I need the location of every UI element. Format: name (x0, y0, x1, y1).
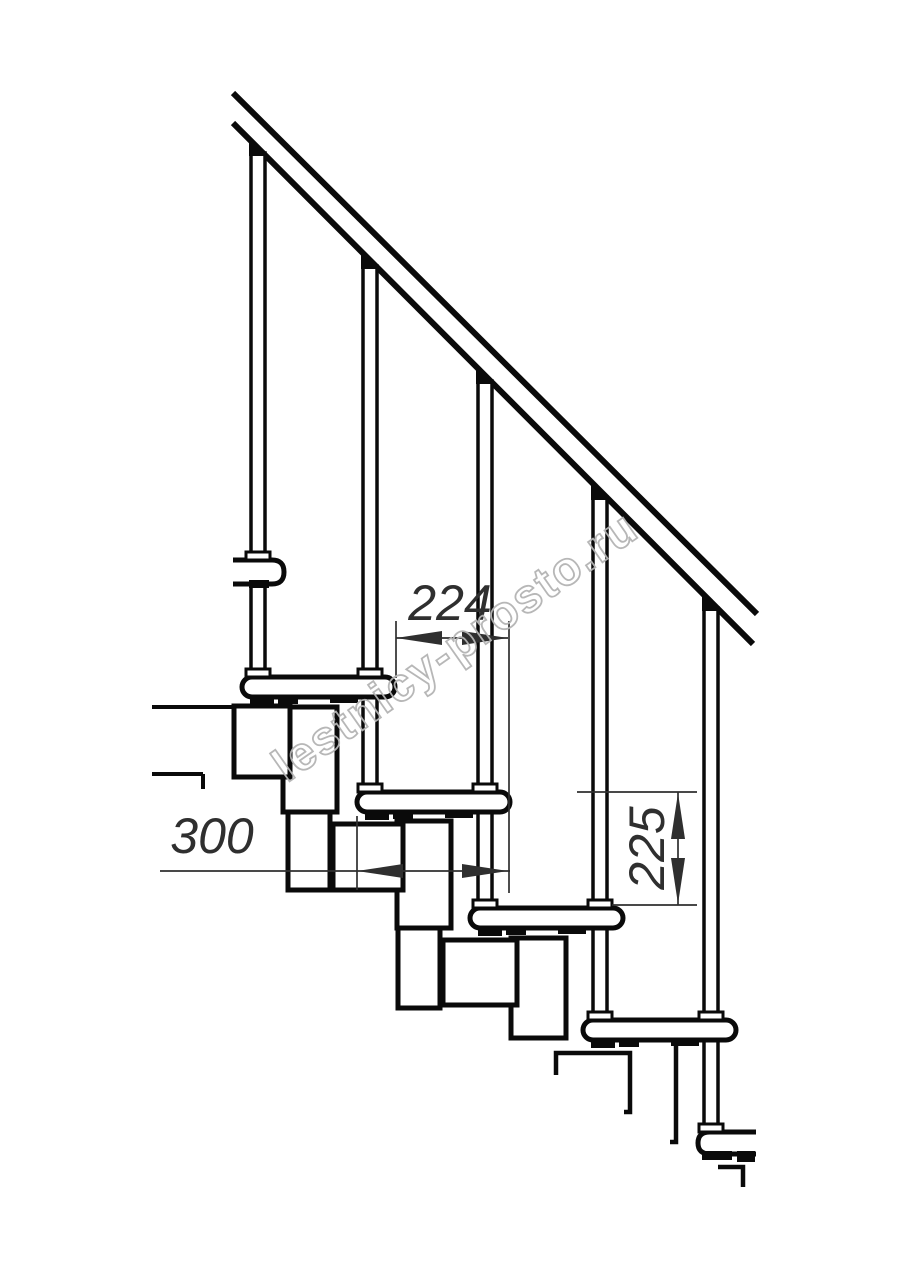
mount-tab (249, 580, 269, 588)
module-box-partial (670, 1046, 676, 1142)
collar (473, 900, 497, 908)
collar (699, 1012, 723, 1020)
module-box (443, 940, 517, 1005)
module-box-partial (556, 1053, 630, 1112)
break-line (718, 1167, 743, 1187)
mount-tab (506, 927, 526, 935)
mount-tab (671, 1039, 699, 1046)
mount-tab (278, 696, 298, 704)
dimension-value-rise: 225 (619, 806, 675, 891)
mount-tab (478, 927, 502, 936)
collar (246, 669, 270, 677)
collar (699, 1124, 723, 1132)
mount-tab (445, 811, 473, 818)
mount-tab (737, 1151, 755, 1162)
left-break-lines (152, 707, 234, 789)
tread-partial-bottom (698, 1132, 756, 1154)
mount-tab (558, 927, 586, 934)
tread (357, 792, 510, 812)
collar (588, 900, 612, 908)
baluster-post (704, 608, 718, 1132)
watermark-text: lestnicy-prosto.ru (262, 500, 647, 792)
collar (246, 552, 270, 560)
module-box (333, 824, 403, 890)
collar (473, 784, 497, 792)
collar (588, 1012, 612, 1020)
mount-tab (250, 696, 274, 705)
dimension-value-tread-depth: 300 (170, 808, 254, 864)
handrail-top-edge (233, 93, 757, 614)
module-box (398, 928, 440, 1008)
mount-tab (702, 1151, 732, 1160)
handrail (233, 93, 757, 644)
mount-tab (365, 811, 389, 820)
tread (583, 1020, 736, 1040)
bottom-break-lines (718, 1167, 743, 1187)
staircase-technical-drawing: 224 300 225 lestnicy-prosto.ru (0, 0, 914, 1280)
collar (358, 784, 382, 792)
mount-tab (393, 811, 413, 819)
baluster-post (251, 153, 265, 677)
tread (470, 908, 623, 928)
module-box (288, 812, 330, 890)
mount-tab (619, 1039, 639, 1047)
mount-tab (591, 1039, 615, 1048)
drawing-canvas: 224 300 225 lestnicy-prosto.ru (0, 0, 914, 1280)
